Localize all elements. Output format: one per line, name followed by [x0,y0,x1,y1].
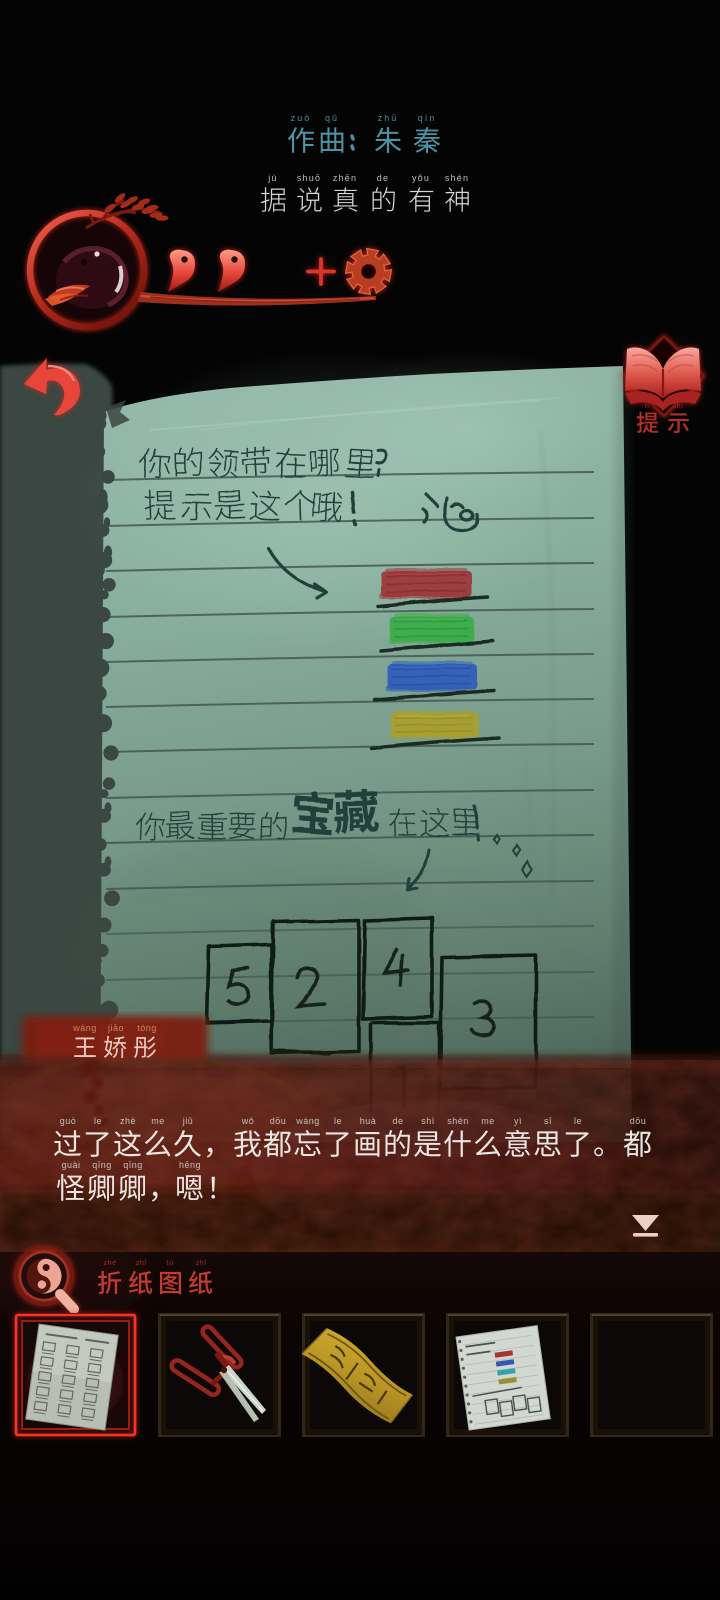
svg-text:me: me [151,1116,165,1126]
svg-text:jiāo: jiāo [107,1023,124,1033]
svg-text:jù: jù [267,173,277,183]
svg-text:shì: shì [672,401,684,410]
svg-text:dōu: dōu [630,1116,647,1126]
svg-text:de: de [377,173,389,183]
svg-text:wǒ: wǒ [241,1116,255,1126]
svg-text:guài: guài [61,1160,80,1170]
svg-text:tí: tí [644,401,650,410]
svg-text:jiǔ: jiǔ [182,1116,194,1126]
svg-text:le: le [94,1116,102,1126]
svg-text:shuō: shuō [297,173,321,183]
svg-text:le: le [574,1116,582,1126]
svg-text:guò: guò [60,1116,77,1126]
svg-text:hēng: hēng [179,1160,201,1170]
svg-text:zuò: zuò [291,113,312,123]
svg-text:huà: huà [360,1116,377,1126]
svg-text:zhǐ: zhǐ [135,1258,146,1267]
svg-text:zhǐ: zhǐ [195,1258,206,1267]
svg-text:shì: shì [421,1116,435,1126]
svg-text:qīng: qīng [123,1160,143,1170]
svg-text:de: de [392,1116,403,1126]
svg-text:zhé: zhé [103,1258,117,1267]
svg-text:qín: qín [418,113,437,123]
svg-text:yì: yì [514,1116,522,1126]
svg-text:zhū: zhū [378,113,399,123]
svg-text:shén: shén [445,173,469,183]
svg-text:zhè: zhè [120,1116,136,1126]
svg-text:shén: shén [447,1116,469,1126]
svg-text:qīng: qīng [92,1160,112,1170]
svg-text:dōu: dōu [270,1116,287,1126]
svg-text:tóng: tóng [137,1023,157,1033]
svg-text:zhēn: zhēn [333,173,357,183]
svg-text:wàng: wàng [295,1116,320,1126]
svg-text:me: me [481,1116,495,1126]
svg-text:yǒu: yǒu [412,173,430,183]
svg-text:sī: sī [544,1116,552,1126]
svg-text:le: le [334,1116,342,1126]
svg-text:wáng: wáng [72,1023,97,1033]
svg-text:tú: tú [166,1258,173,1267]
svg-text:qǔ: qǔ [325,113,339,123]
